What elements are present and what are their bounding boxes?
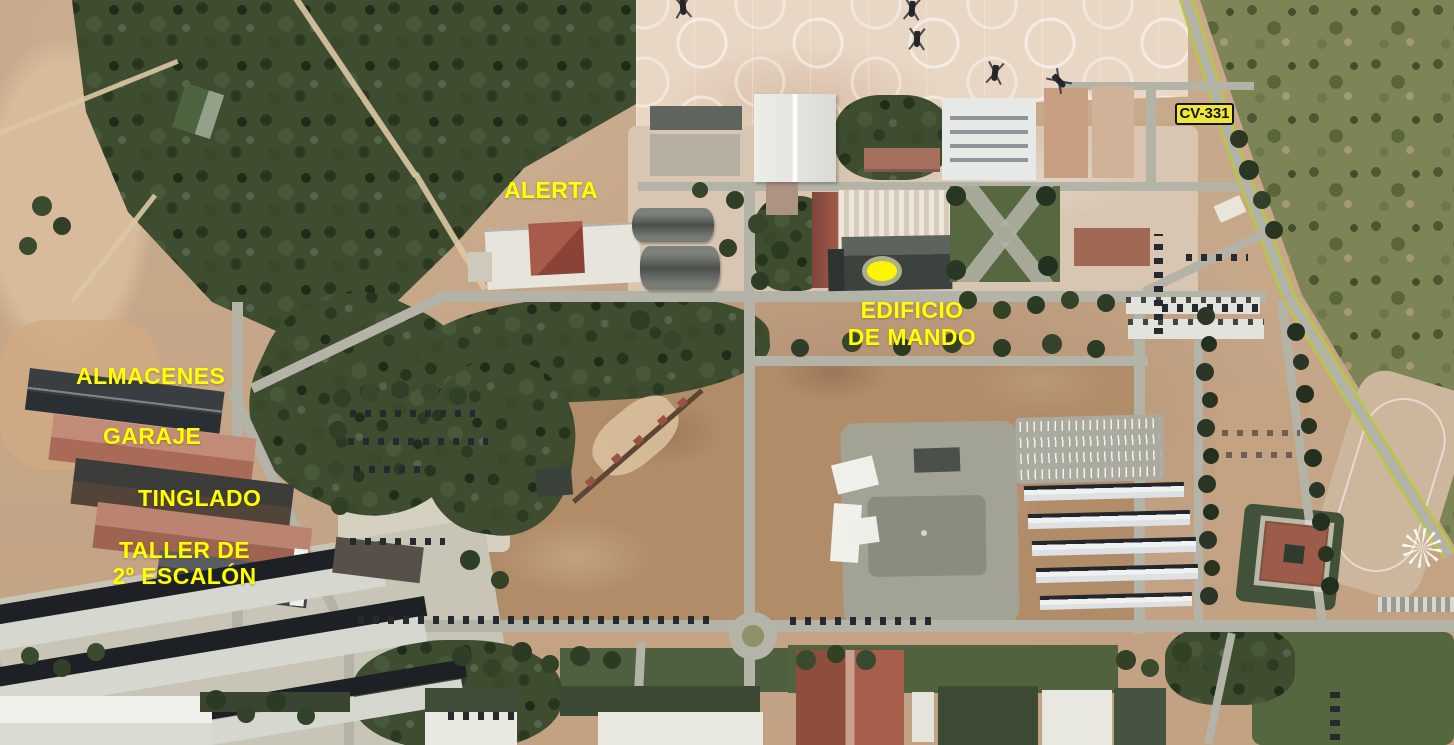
- barracks-building: [1028, 510, 1190, 529]
- barracks-building: [1040, 592, 1192, 610]
- parked-cars-row: [790, 617, 940, 625]
- compass-rose: [1402, 528, 1442, 568]
- building: [942, 98, 1036, 180]
- map-label-garaje: GARAJE: [103, 423, 201, 449]
- parked-cars-row: [1330, 690, 1340, 740]
- parked-cars-row: [358, 616, 718, 624]
- parking-stall-row: [1019, 418, 1159, 432]
- flag-point: [921, 530, 927, 536]
- building: [864, 148, 940, 172]
- label-line: DE MANDO: [828, 324, 996, 351]
- building: [1042, 690, 1112, 745]
- building: [650, 106, 742, 130]
- building: [1074, 228, 1150, 266]
- parked-cars-row: [354, 466, 424, 473]
- map-label-alerta: ALERTA: [504, 177, 598, 203]
- helicopter: [669, 0, 697, 21]
- window-rows: [950, 106, 1028, 172]
- barracks-building: [1036, 564, 1198, 583]
- parked-cars-row: [1162, 304, 1258, 312]
- road-badge-cv331: CV-331: [1175, 103, 1234, 125]
- building: [0, 696, 212, 745]
- parking-stall-row: [1020, 434, 1160, 448]
- building: [846, 516, 879, 546]
- parked-cars-row: [1154, 234, 1163, 334]
- helicopter: [898, 0, 926, 23]
- parked-cars-row: [1222, 430, 1300, 436]
- location-marker: [862, 256, 902, 286]
- building-wing: [828, 249, 845, 291]
- parked-cars-row: [350, 410, 475, 417]
- map-label-taller: TALLER DE 2º ESCALÓN: [92, 537, 277, 589]
- satellite-map-canvas[interactable]: ALERTA EDIFICIO DE MANDO ALMACENES GARAJ…: [0, 0, 1454, 745]
- gate-building: [1214, 195, 1247, 223]
- parked-cars-row: [1226, 452, 1298, 458]
- green-roof: [425, 688, 517, 712]
- parked-cars-row: [1186, 254, 1248, 261]
- building: [468, 252, 492, 282]
- parking-stall-row: [1021, 466, 1161, 480]
- building: [535, 466, 573, 497]
- building: [200, 692, 350, 712]
- parked-cars-row: [448, 712, 518, 720]
- courtyard-building: [1259, 521, 1329, 587]
- parked-cars-row: [350, 538, 445, 545]
- alerta-building: [485, 222, 642, 290]
- tree-cluster: [0, 0, 5, 5]
- building: [796, 650, 904, 745]
- building: [766, 181, 798, 215]
- parade-ground-inner: [867, 495, 986, 577]
- formal-garden: [950, 186, 1060, 282]
- label-line: 2º ESCALÓN: [92, 563, 277, 589]
- hangar: [640, 246, 720, 290]
- hangar: [632, 208, 714, 242]
- crosswalk: [1378, 597, 1454, 612]
- road: [1146, 84, 1156, 188]
- building: [938, 686, 1038, 745]
- map-label-almacenes: ALMACENES: [76, 363, 225, 389]
- inner-courtyard: [1283, 544, 1305, 564]
- parking-stall-row: [1020, 450, 1160, 464]
- red-roof-section: [528, 221, 585, 276]
- map-label-tinglado: TINGLADO: [138, 485, 261, 511]
- road: [750, 356, 1148, 366]
- building: [1044, 88, 1088, 178]
- roundabout: [729, 612, 777, 660]
- building: [1128, 319, 1264, 339]
- building: [914, 447, 961, 473]
- building: [912, 692, 934, 742]
- building: [598, 712, 763, 745]
- building: [1092, 86, 1134, 178]
- map-label-edificio-de-mando: EDIFICIO DE MANDO: [828, 297, 996, 351]
- building: [1114, 688, 1166, 745]
- parked-cars-row: [348, 438, 488, 445]
- label-line: EDIFICIO: [828, 297, 996, 324]
- helicopter: [904, 26, 931, 53]
- barracks-building: [1024, 482, 1184, 501]
- barracks-building: [1032, 537, 1196, 556]
- white-hangar: [754, 94, 836, 182]
- striped-parking: [1015, 414, 1165, 484]
- helicopter: [980, 58, 1009, 87]
- label-line: TALLER DE: [92, 537, 277, 563]
- road: [744, 186, 755, 745]
- courtyard: [650, 134, 740, 176]
